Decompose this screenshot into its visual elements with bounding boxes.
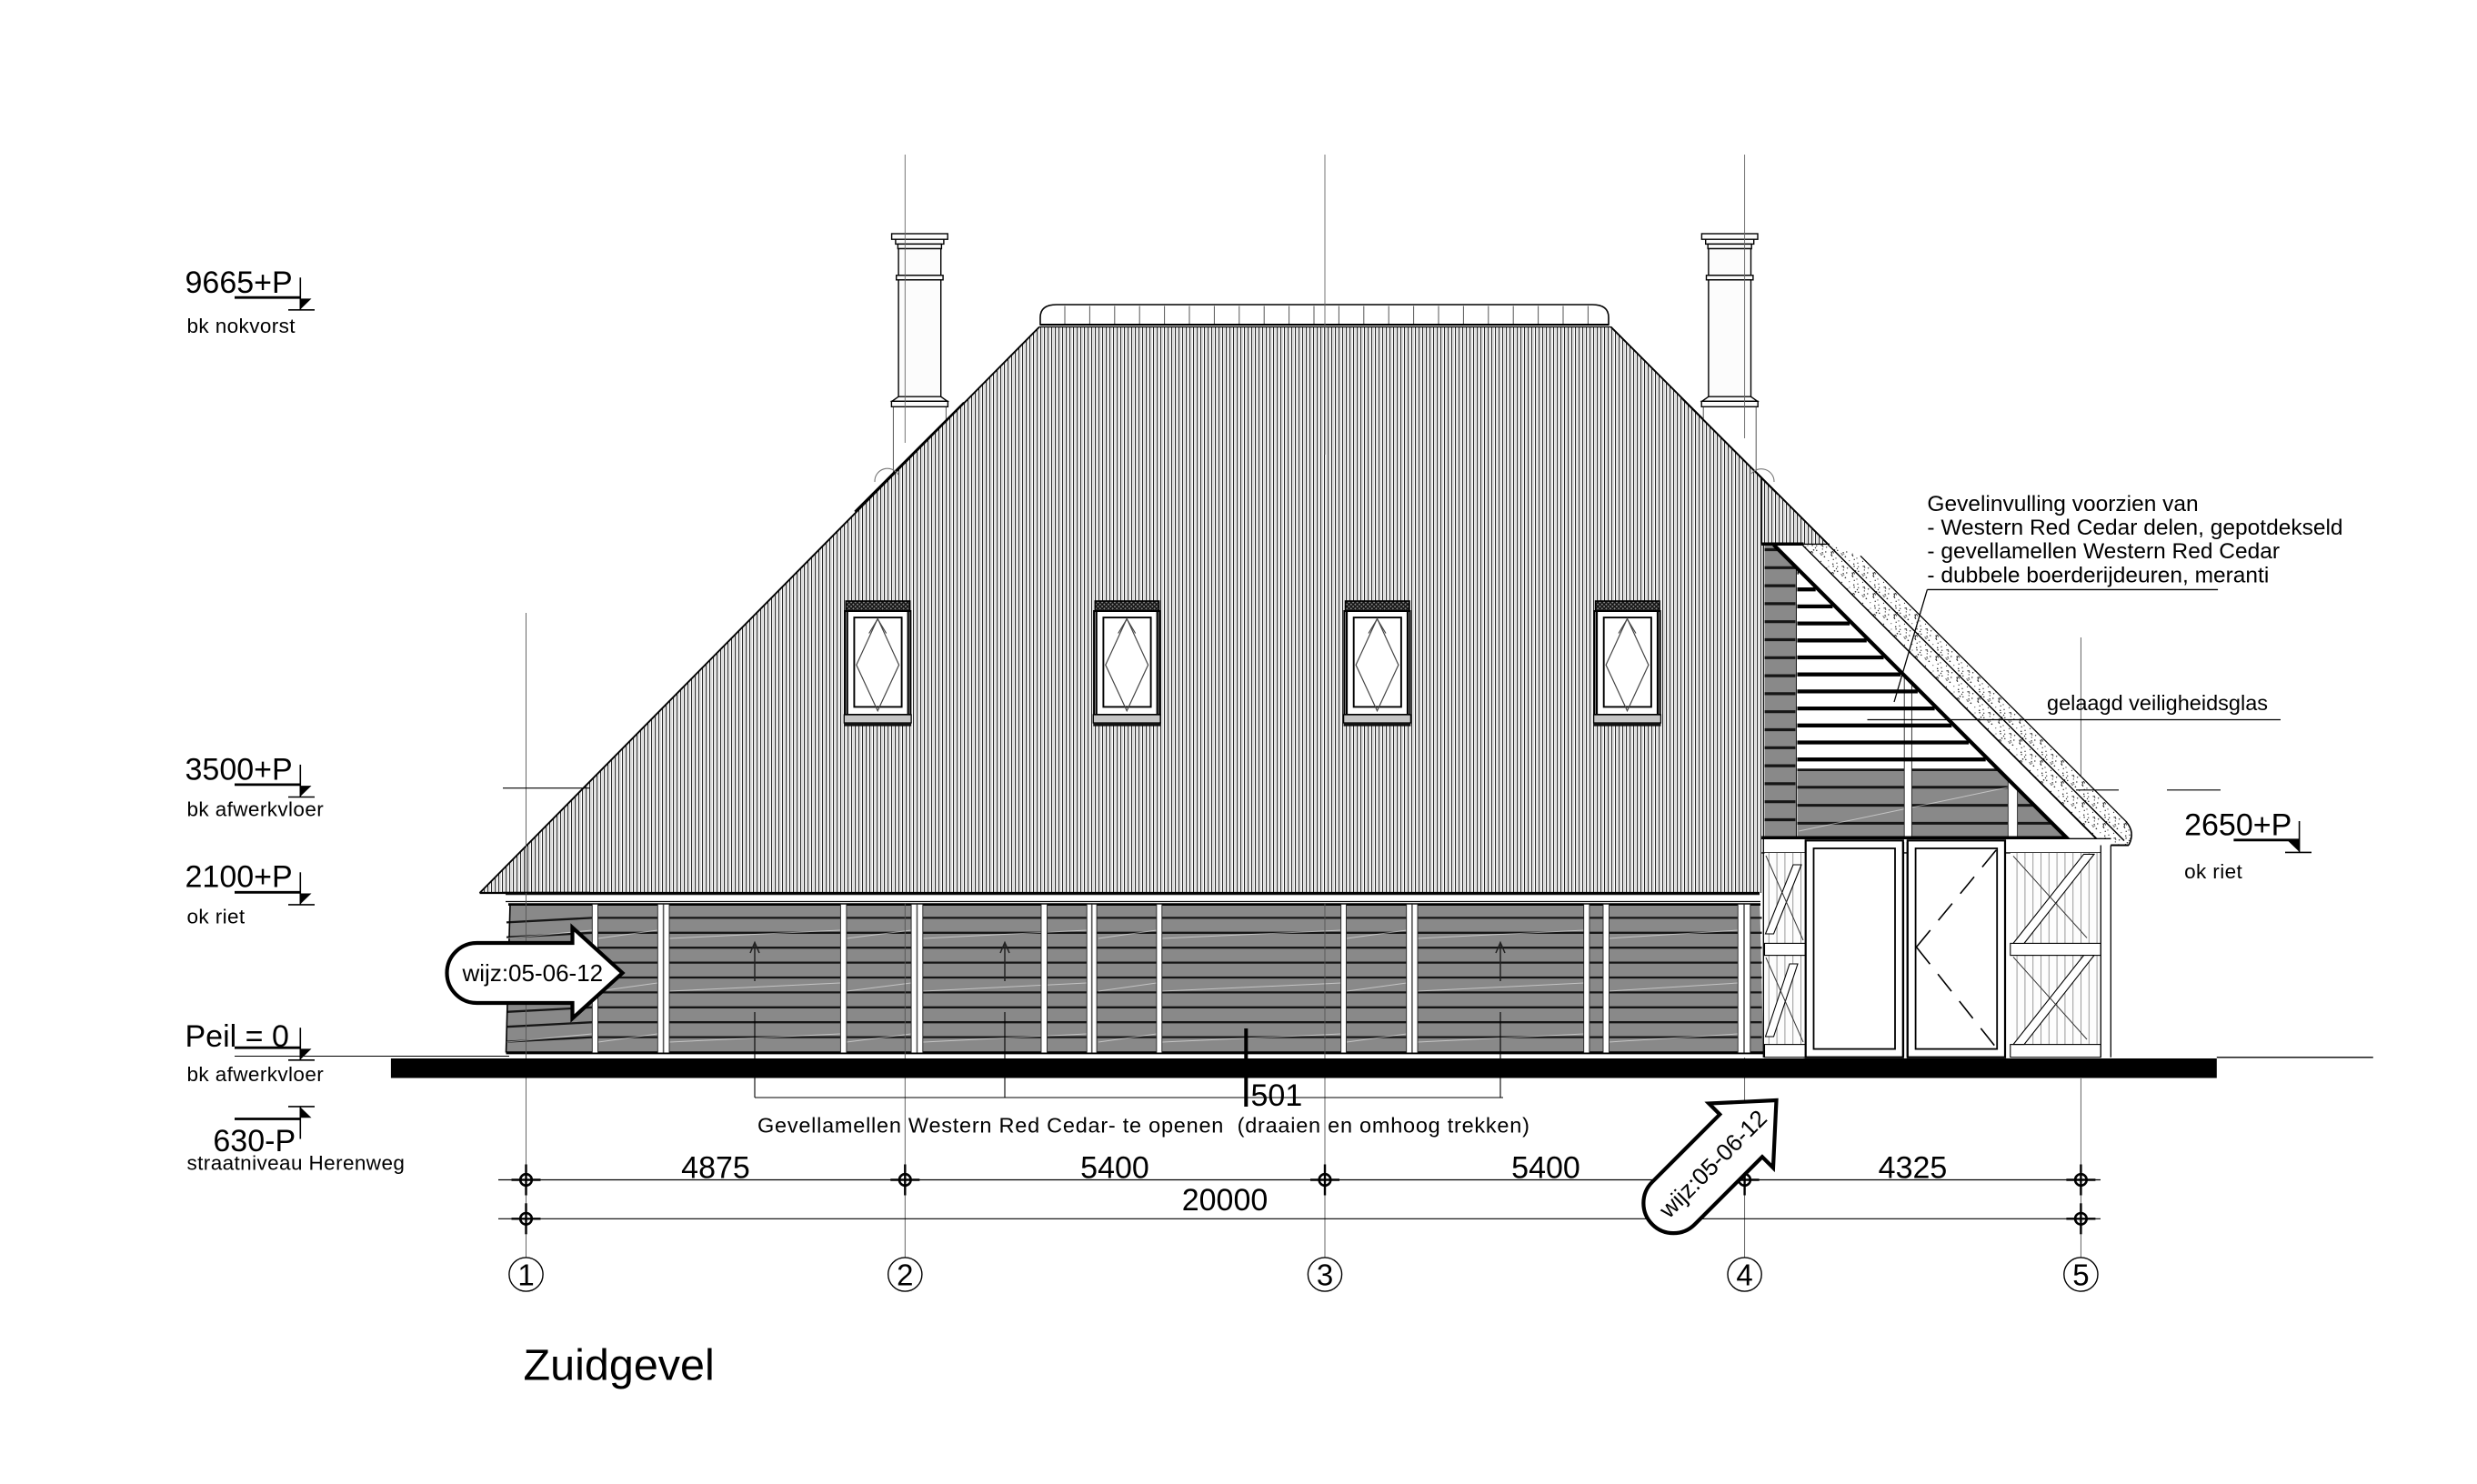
svg-text:2650+P: 2650+P bbox=[2184, 808, 2291, 843]
svg-text:3500+P: 3500+P bbox=[186, 753, 293, 787]
svg-text:wijz:05-06-12: wijz:05-06-12 bbox=[462, 959, 604, 987]
svg-text:2100+P: 2100+P bbox=[186, 860, 293, 895]
svg-text:straatniveau Herenweg: straatniveau Herenweg bbox=[187, 1152, 406, 1175]
svg-text:9665+P: 9665+P bbox=[186, 266, 293, 300]
svg-text:bk nokvorst: bk nokvorst bbox=[187, 315, 296, 337]
svg-text:2: 2 bbox=[897, 1258, 913, 1292]
svg-text:- Western Red Cedar delen, gep: - Western Red Cedar delen, gepotdekseld bbox=[1927, 516, 2342, 540]
svg-text:1: 1 bbox=[517, 1258, 534, 1292]
svg-text:4875: 4875 bbox=[681, 1151, 750, 1186]
svg-text:- dubbele boerderijdeuren, mer: - dubbele boerderijdeuren, meranti bbox=[1927, 563, 2269, 587]
svg-text:4325: 4325 bbox=[1879, 1151, 1948, 1186]
svg-text:bk afwerkvloer: bk afwerkvloer bbox=[187, 798, 325, 821]
svg-text:Gevelinvulling voorzien van: Gevelinvulling voorzien van bbox=[1927, 492, 2198, 516]
svg-text:3: 3 bbox=[1317, 1258, 1333, 1292]
svg-text:5400: 5400 bbox=[1511, 1151, 1580, 1186]
svg-text:gelaagd veiligheidsglas: gelaagd veiligheidsglas bbox=[2047, 691, 2268, 715]
svg-text:5: 5 bbox=[2072, 1258, 2089, 1292]
svg-text:- gevellamellen Western Red Ce: - gevellamellen Western Red Cedar bbox=[1927, 539, 2280, 564]
svg-text:Zuidgevel: Zuidgevel bbox=[524, 1341, 715, 1390]
svg-text:5400: 5400 bbox=[1080, 1151, 1149, 1186]
svg-text:4: 4 bbox=[1736, 1258, 1752, 1292]
svg-text:ok riet: ok riet bbox=[2184, 860, 2242, 883]
svg-text:bk afwerkvloer: bk afwerkvloer bbox=[187, 1063, 325, 1086]
svg-text:501: 501 bbox=[1251, 1078, 1303, 1113]
svg-text:20000: 20000 bbox=[1182, 1183, 1269, 1218]
svg-text:Gevellamellen Western Red Ceda: Gevellamellen Western Red Cedar- te open… bbox=[757, 1114, 1530, 1138]
svg-text:ok riet: ok riet bbox=[187, 906, 246, 928]
